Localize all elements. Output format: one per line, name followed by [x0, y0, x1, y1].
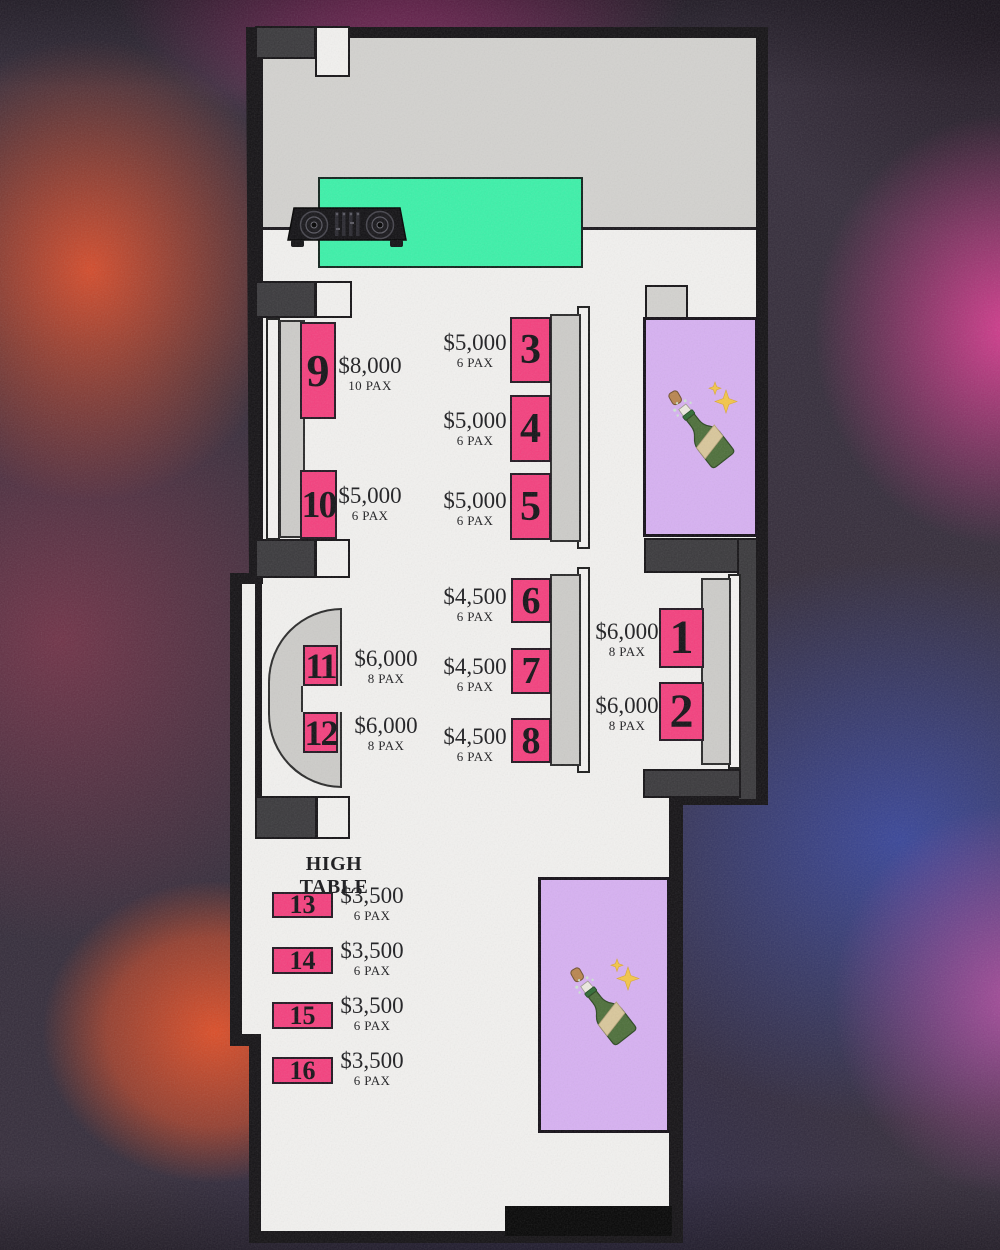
table-pax: 6 PAX — [334, 1073, 410, 1088]
table-number: 12 — [305, 715, 337, 751]
table-10-label: $5,000 6 PAX — [330, 484, 410, 523]
table-14[interactable]: 14 — [272, 947, 333, 974]
table-11[interactable]: 11 — [303, 645, 338, 686]
table-price: $6,000 — [344, 714, 428, 738]
table-number: 8 — [522, 722, 541, 760]
table-price: $6,000 — [588, 694, 666, 718]
table-15[interactable]: 15 — [272, 1002, 333, 1029]
table-7[interactable]: 7 — [511, 648, 551, 694]
table-pax: 6 PAX — [436, 433, 514, 448]
wall-opening — [315, 26, 350, 77]
table-number: 4 — [520, 408, 541, 450]
table-15-label: $3,500 6 PAX — [334, 994, 410, 1033]
table-8[interactable]: 8 — [511, 718, 551, 763]
sparkles-icon — [709, 382, 737, 413]
bench-back — [266, 318, 280, 540]
booth-gap — [301, 686, 344, 712]
table-number: 6 — [522, 582, 541, 620]
table-pax: 6 PAX — [334, 963, 410, 978]
club-floor-plan: 9 10 3 4 5 6 7 8 1 2 11 12 13 14 15 16 $… — [0, 0, 1000, 1250]
table-number: 3 — [520, 329, 541, 371]
table-pax: 8 PAX — [344, 671, 428, 686]
table-number: 5 — [520, 486, 541, 528]
table-number: 15 — [290, 1003, 316, 1029]
table-price: $3,500 — [334, 994, 410, 1018]
wall-block — [255, 539, 316, 578]
champagne-bottle-icon — [558, 955, 650, 1051]
wall-block — [643, 769, 741, 798]
wall-block — [644, 538, 741, 573]
table-12-label: $6,000 8 PAX — [344, 714, 428, 753]
table-number: 16 — [290, 1058, 316, 1084]
table-pax: 6 PAX — [334, 908, 410, 923]
entry-bar — [505, 1206, 672, 1236]
dj-controller-icon — [284, 200, 410, 252]
table-pax: 6 PAX — [330, 508, 410, 523]
table-price: $6,000 — [344, 647, 428, 671]
table-2-label: $6,000 8 PAX — [588, 694, 666, 733]
table-14-label: $3,500 6 PAX — [334, 939, 410, 978]
table-pax: 8 PAX — [344, 738, 428, 753]
wall-opening — [316, 796, 350, 839]
bench-seat — [550, 314, 581, 542]
table-price: $4,500 — [436, 585, 514, 609]
table-12[interactable]: 12 — [303, 712, 338, 753]
table-4[interactable]: 4 — [510, 395, 551, 462]
table-8-label: $4,500 6 PAX — [436, 725, 514, 764]
table-3[interactable]: 3 — [510, 317, 551, 383]
table-price: $5,000 — [436, 331, 514, 355]
table-pax: 6 PAX — [436, 355, 514, 370]
table-16[interactable]: 16 — [272, 1057, 333, 1084]
table-price: $5,000 — [436, 489, 514, 513]
table-pax: 6 PAX — [436, 749, 514, 764]
table-price: $8,000 — [330, 354, 410, 378]
table-price: $3,500 — [334, 1049, 410, 1073]
table-1-label: $6,000 8 PAX — [588, 620, 666, 659]
wall-block — [255, 26, 316, 59]
table-pax: 6 PAX — [436, 679, 514, 694]
service-step — [645, 285, 688, 319]
wall-block — [255, 281, 316, 318]
table-9-label: $8,000 10 PAX — [330, 354, 410, 393]
table-price: $5,000 — [436, 409, 514, 433]
table-pax: 6 PAX — [334, 1018, 410, 1033]
sparkles-icon — [611, 959, 639, 990]
wall-opening — [315, 281, 352, 318]
table-4-label: $5,000 6 PAX — [436, 409, 514, 448]
bench-seat — [701, 578, 731, 765]
table-6-label: $4,500 6 PAX — [436, 585, 514, 624]
table-number: 2 — [670, 688, 694, 736]
table-pax: 6 PAX — [436, 609, 514, 624]
table-number: 1 — [670, 614, 694, 662]
table-5[interactable]: 5 — [510, 473, 551, 540]
table-number: 14 — [290, 948, 316, 974]
table-pax: 10 PAX — [330, 378, 410, 393]
table-pax: 6 PAX — [436, 513, 514, 528]
wall-block — [255, 796, 317, 839]
table-6[interactable]: 6 — [511, 578, 551, 623]
bench-seat — [550, 574, 581, 766]
table-11-label: $6,000 8 PAX — [344, 647, 428, 686]
table-price: $3,500 — [334, 939, 410, 963]
table-price: $5,000 — [330, 484, 410, 508]
table-pax: 8 PAX — [588, 644, 666, 659]
high-table-heading: HIGH TABLE — [270, 853, 398, 899]
champagne-bottle-icon — [656, 378, 748, 474]
table-price: $6,000 — [588, 620, 666, 644]
table-price: $4,500 — [436, 655, 514, 679]
table-3-label: $5,000 6 PAX — [436, 331, 514, 370]
table-number: 9 — [307, 348, 330, 394]
table-5-label: $5,000 6 PAX — [436, 489, 514, 528]
table-pax: 8 PAX — [588, 718, 666, 733]
table-16-label: $3,500 6 PAX — [334, 1049, 410, 1088]
table-number: 11 — [305, 648, 335, 684]
wall-divider — [255, 577, 262, 798]
table-number: 7 — [522, 652, 541, 690]
table-7-label: $4,500 6 PAX — [436, 655, 514, 694]
wall-opening — [315, 539, 350, 578]
table-price: $4,500 — [436, 725, 514, 749]
